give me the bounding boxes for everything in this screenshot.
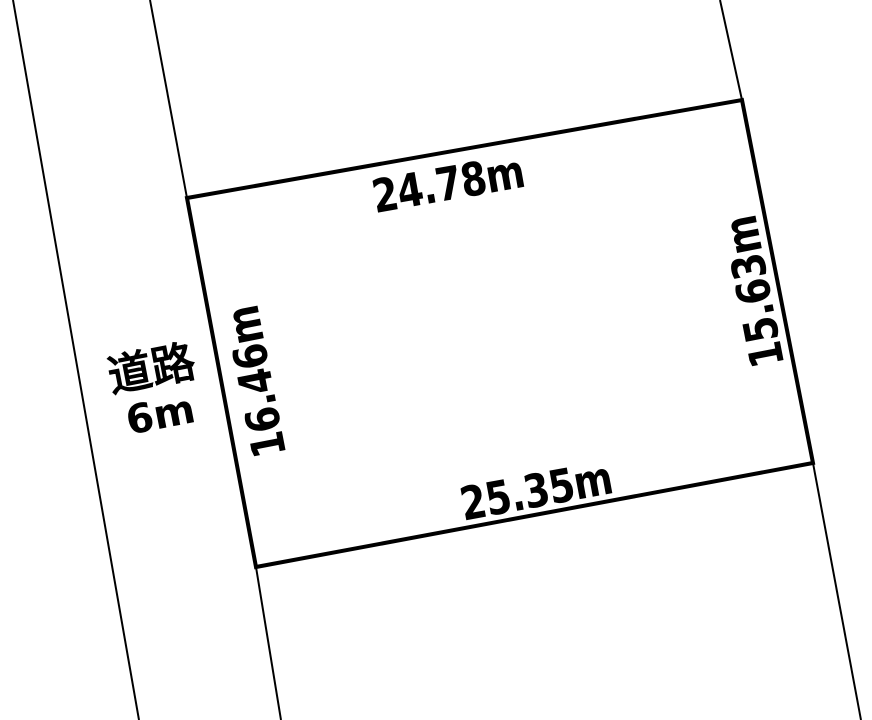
road-right-edge-upper-line bbox=[150, 0, 187, 198]
boundary-extension-upper-right-line bbox=[720, 0, 742, 100]
land-plot-diagram: 24.78m 15.63m 25.35m 16.46m 道路 6m bbox=[0, 0, 872, 720]
road-label: 道路 6m bbox=[104, 338, 208, 445]
road-right-edge-lower-line bbox=[256, 567, 281, 720]
boundary-extension-lower-right-line bbox=[813, 463, 861, 720]
